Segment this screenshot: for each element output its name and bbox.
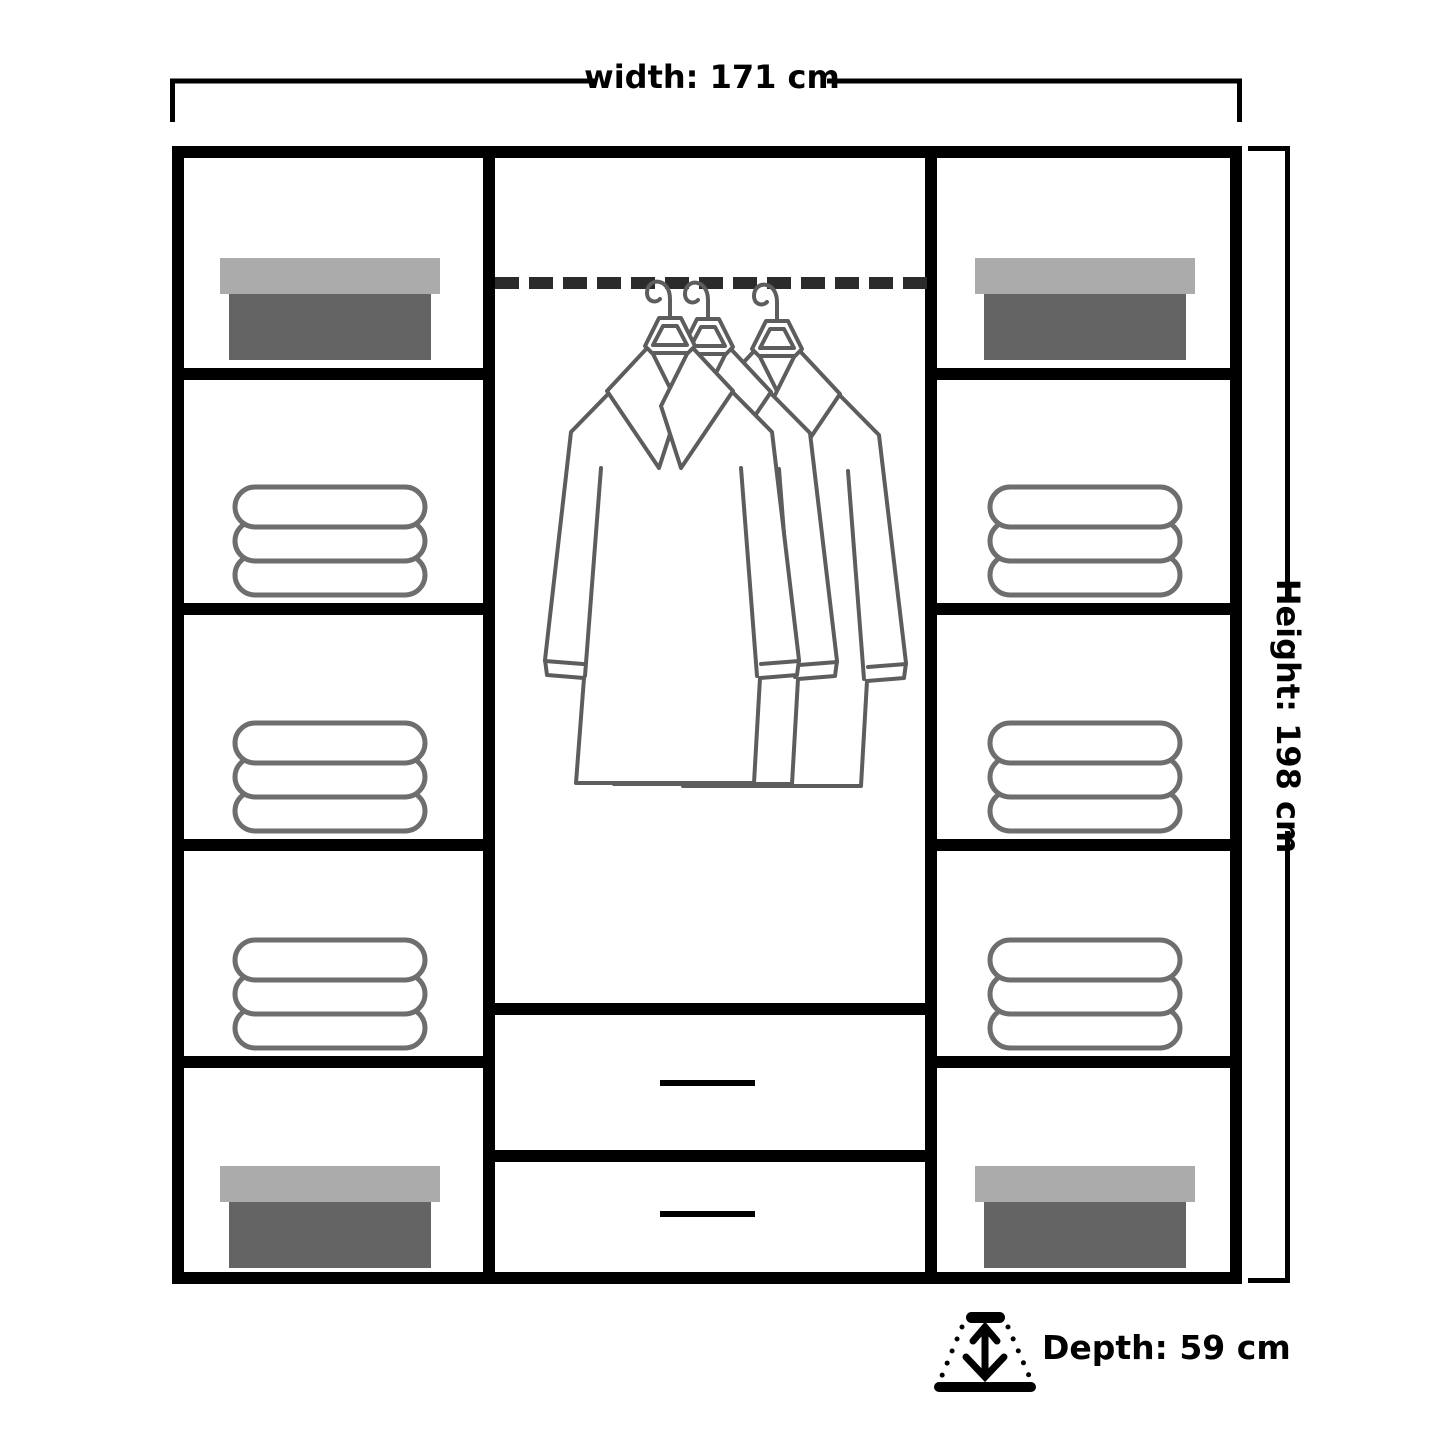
drawer-handle xyxy=(660,1211,755,1217)
storage-box xyxy=(975,258,1195,360)
diagram-artwork xyxy=(0,0,1445,1445)
towel-stack xyxy=(235,487,425,595)
left-partition xyxy=(483,146,495,1284)
width-dimension-label: width: 171 cm xyxy=(512,58,912,96)
storage-box xyxy=(220,1166,440,1268)
storage-box xyxy=(975,1166,1195,1268)
drawer-handle xyxy=(660,1080,755,1086)
storage-box xyxy=(220,258,440,360)
right-partition xyxy=(925,146,937,1284)
towel-stack xyxy=(990,723,1180,831)
drawer-top-divider xyxy=(483,1003,937,1015)
towel-stack xyxy=(235,940,425,1048)
height-dimension-label: Height: 198 cm xyxy=(1269,579,1307,854)
wardrobe-dimensions-diagram: width: 171 cm Height: 198 cm Depth: 59 c… xyxy=(0,0,1445,1445)
drawers xyxy=(660,1080,755,1217)
towel-stack xyxy=(990,940,1180,1048)
depth-dimension-label: Depth: 59 cm xyxy=(1042,1328,1291,1368)
shirts-on-hangers xyxy=(545,282,906,786)
towel-stack xyxy=(990,487,1180,595)
drawer-middle-divider xyxy=(483,1150,937,1162)
towel-stack xyxy=(235,723,425,831)
depth-icon xyxy=(934,1312,1036,1392)
